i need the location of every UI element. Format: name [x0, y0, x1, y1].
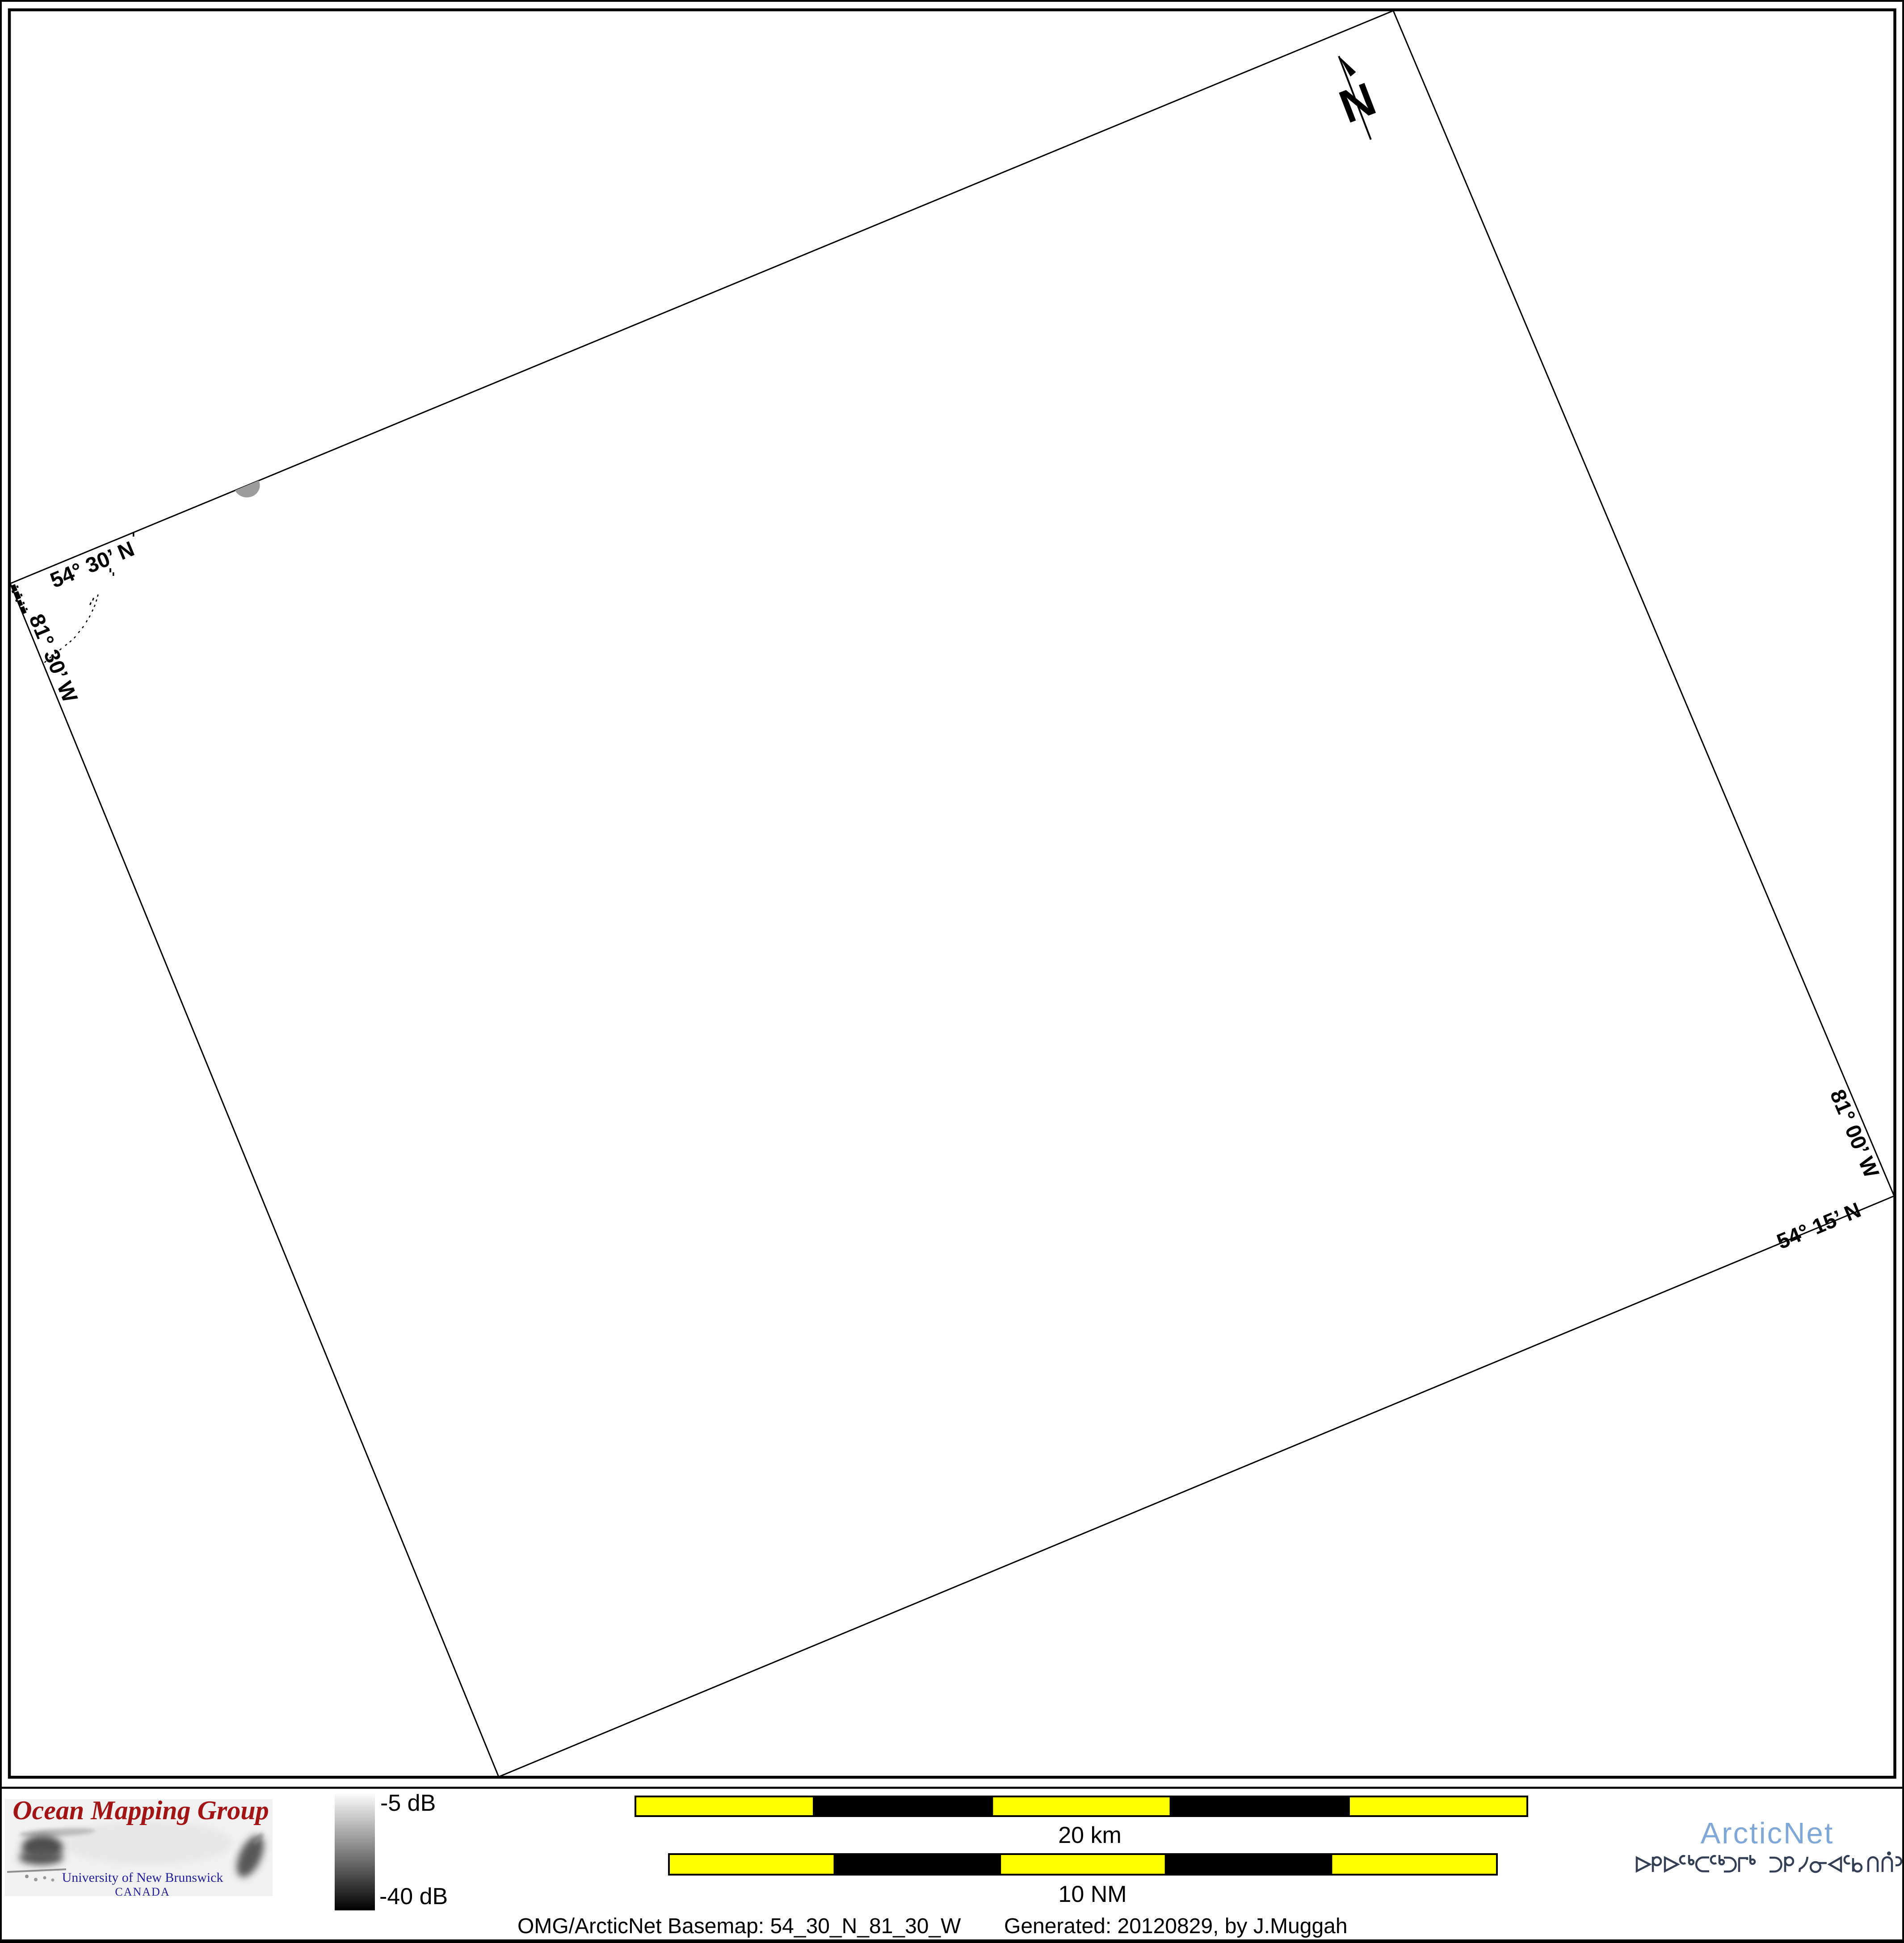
svg-text:-40 dB: -40 dB: [379, 1884, 448, 1909]
svg-text:-5 dB: -5 dB: [380, 1790, 436, 1816]
svg-text:Generated: 20120829, by J.Mugg: Generated: 20120829, by J.Muggah: [1004, 1914, 1348, 1938]
svg-text:10 NM: 10 NM: [1058, 1881, 1126, 1907]
svg-text:Ocean Mapping Group: Ocean Mapping Group: [13, 1796, 269, 1825]
svg-text:ArcticNet: ArcticNet: [1701, 1817, 1834, 1850]
svg-text:CANADA: CANADA: [115, 1885, 170, 1898]
svg-text:OMG/ArcticNet Basemap: 54_30_N: OMG/ArcticNet Basemap: 54_30_N_81_30_W: [517, 1914, 961, 1938]
svg-text:20 km: 20 km: [1058, 1822, 1122, 1848]
svg-text:University of New Brunswick: University of New Brunswick: [62, 1870, 223, 1885]
